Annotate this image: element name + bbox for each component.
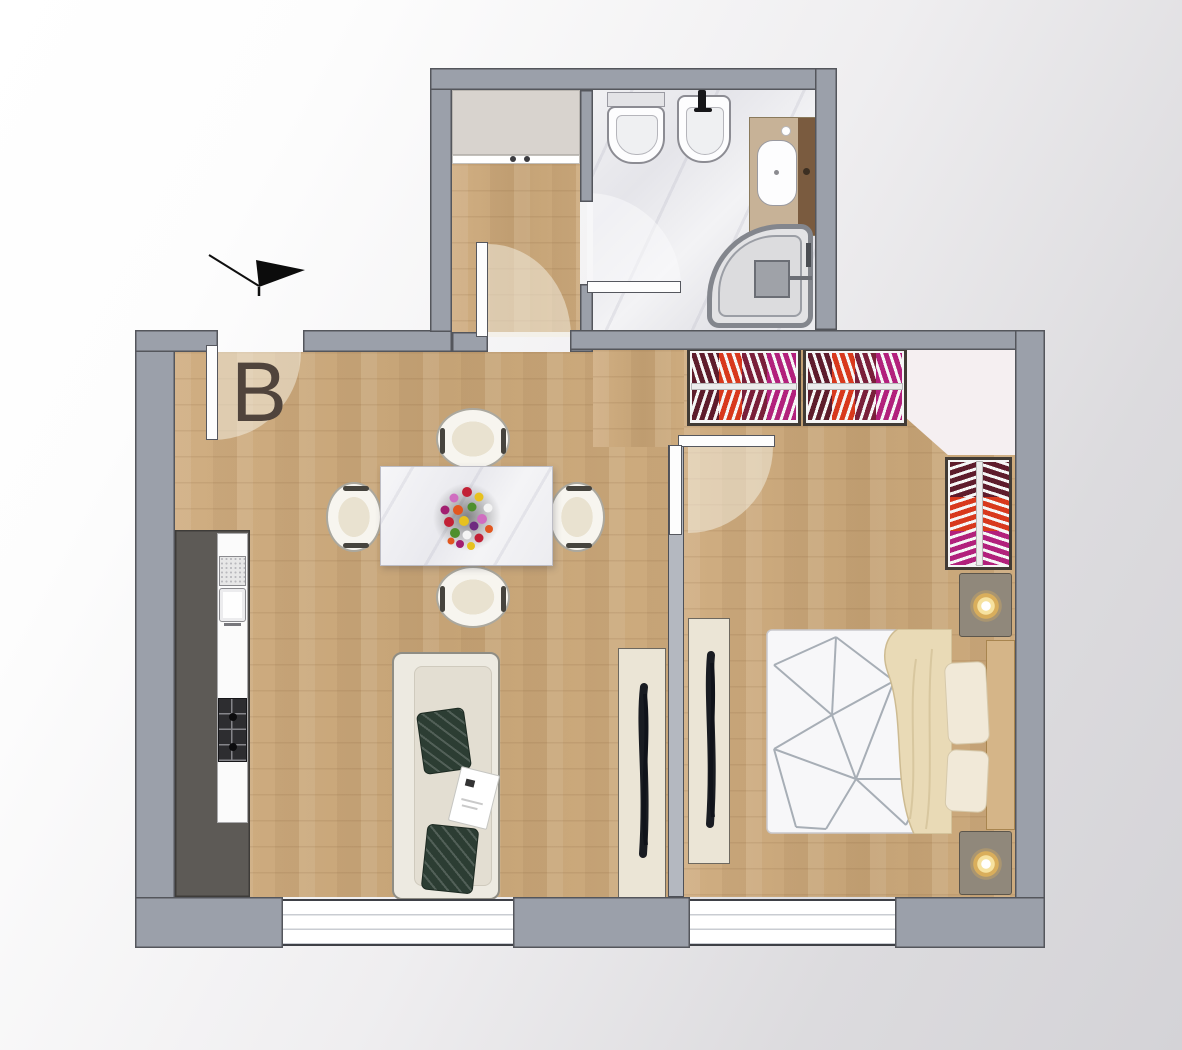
wardrobe-2 <box>803 348 907 426</box>
sideboard-decor-stroke <box>619 649 667 899</box>
wall-bottom-pier <box>513 897 690 948</box>
shower-drain-plate <box>754 260 790 298</box>
bathtub-surround <box>749 117 816 236</box>
entrance-door-leaf <box>206 345 218 440</box>
floorplan-canvas: B <box>0 0 1182 1050</box>
hallway-closet-track <box>452 155 580 164</box>
hallway-door-leaf <box>476 242 488 337</box>
passage-floor <box>593 350 684 447</box>
entrance-arrow-icon <box>203 246 313 302</box>
sideboard-living <box>618 648 666 898</box>
closet-door-handle <box>510 156 516 162</box>
hallway-closet <box>452 90 580 155</box>
window-bedroom <box>690 899 895 946</box>
bathtub-knob <box>803 168 810 175</box>
sofa-pillow <box>421 823 480 894</box>
sideboard-decor-stroke <box>689 619 731 865</box>
bathtub-side-panel <box>798 118 816 235</box>
wall-top-living <box>303 330 452 352</box>
shower-arm <box>789 276 812 280</box>
bed-pillow <box>944 749 989 813</box>
stove-cooktop <box>218 698 247 762</box>
wall-left <box>135 330 175 948</box>
bed <box>766 629 952 834</box>
bed-headboard <box>986 640 1015 830</box>
nightstand-lamp <box>969 589 1003 623</box>
kitchen-sink <box>219 588 246 622</box>
closet-door-handle <box>524 156 530 162</box>
dining-chair-bottom <box>436 566 510 628</box>
nightstand-bottom <box>959 831 1012 895</box>
wardrobe-1 <box>687 348 801 426</box>
toilet <box>607 106 665 164</box>
stove-burner <box>229 713 237 721</box>
nightstand-lamp <box>969 847 1003 881</box>
bathtub-drain <box>774 170 779 175</box>
sofa-pillow <box>416 707 472 775</box>
sideboard-bedroom <box>688 618 730 864</box>
soap-dish <box>781 126 791 136</box>
bedroom-door-leaf <box>669 445 682 535</box>
wall-annex-left <box>430 68 452 332</box>
sink-faucet <box>224 623 241 626</box>
bed-pillow <box>944 661 990 745</box>
bedroom-door-frame <box>678 435 775 447</box>
wall-hall-bath-divider <box>580 90 593 202</box>
unit-label: B <box>231 350 287 434</box>
flower-bouquet <box>424 474 510 560</box>
wall-right <box>1015 330 1045 948</box>
wall-bedroom-top <box>570 330 1045 350</box>
shower-handle <box>806 243 811 267</box>
sink-draining-board <box>219 556 246 586</box>
toilet-tank <box>607 92 665 107</box>
stove-burner <box>229 743 237 751</box>
bathroom-door-leaf <box>587 281 681 293</box>
toilet-seat <box>616 115 658 155</box>
dining-chair-right <box>549 482 605 552</box>
dining-chair-left <box>326 482 382 552</box>
wall-annex-right <box>815 68 837 330</box>
wall-annex-top <box>430 68 837 90</box>
wardrobe-3 <box>945 457 1012 570</box>
dining-chair-top <box>436 408 510 470</box>
nightstand-top <box>959 573 1012 637</box>
bidet-basin <box>686 107 724 155</box>
bidet-faucet-spout <box>694 108 712 112</box>
window-living-room <box>283 899 513 946</box>
wall-bottom-left-block <box>135 897 283 948</box>
wall-bottom-right-block <box>895 897 1045 948</box>
